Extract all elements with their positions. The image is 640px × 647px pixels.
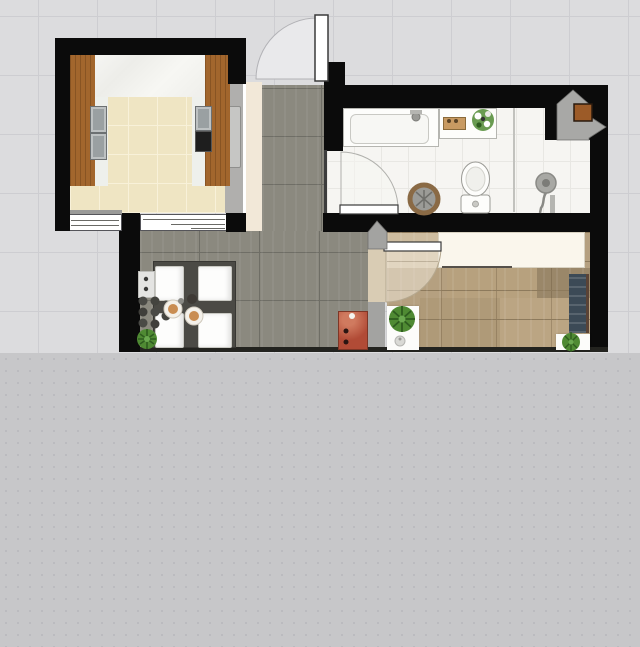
plant-bedroom-left[interactable] (389, 306, 415, 332)
tray-item (447, 119, 451, 123)
laundry-basket[interactable] (410, 185, 438, 213)
fixtures-overlay (0, 0, 640, 647)
entry-door-swing-arc (256, 18, 317, 79)
duct-vent-square (574, 104, 592, 121)
toilet[interactable] (461, 162, 490, 213)
bathtub-faucet-bar (410, 110, 422, 114)
potted-plant-dining[interactable] (137, 329, 157, 349)
bedroom-door-leaf[interactable] (384, 242, 441, 251)
knob (144, 287, 148, 291)
plant-bedroom-right[interactable] (562, 332, 580, 352)
knob (344, 340, 349, 345)
vase-small[interactable] (395, 336, 405, 346)
bathroom-door-leaf[interactable] (340, 205, 398, 214)
knob (144, 277, 148, 281)
bathtub-faucet (412, 113, 420, 121)
flower-bouquet[interactable] (472, 109, 494, 131)
bedroom-door-swing-arc (386, 247, 441, 302)
floor-plan-canvas (0, 0, 640, 647)
shower-head[interactable] (536, 173, 556, 213)
cabinet-decor-dot (349, 313, 355, 319)
entry-door-leaf[interactable] (315, 15, 328, 81)
knob (344, 329, 349, 334)
table-setting (164, 294, 203, 325)
bathroom-door-swing-arc (341, 152, 398, 209)
tray-item (454, 119, 458, 123)
wall-cap-pentagon (368, 221, 387, 249)
